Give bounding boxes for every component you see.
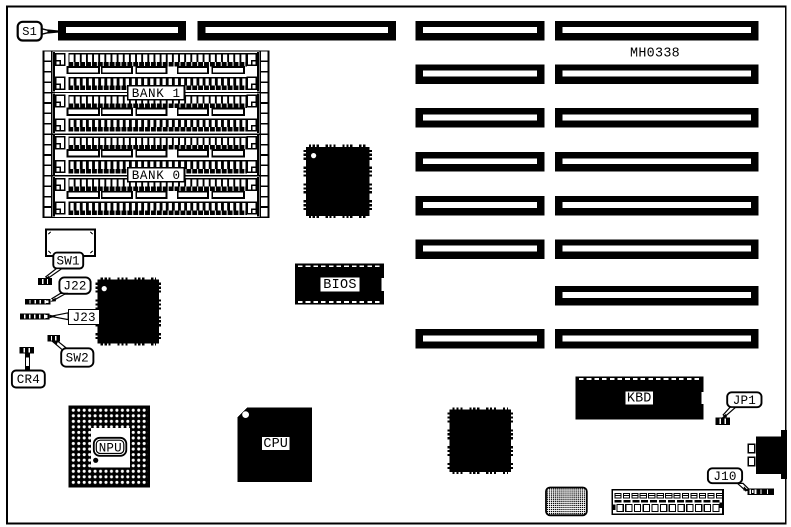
svg-text:JP1: JP1 bbox=[733, 394, 756, 408]
svg-text:NPU: NPU bbox=[99, 442, 122, 456]
svg-text:J10: J10 bbox=[713, 470, 736, 484]
svg-text:CPU: CPU bbox=[263, 437, 288, 452]
svg-text:KBD: KBD bbox=[627, 392, 652, 407]
svg-text:BANK 1: BANK 1 bbox=[132, 87, 181, 101]
svg-text:J22: J22 bbox=[63, 280, 86, 294]
svg-text:MH0338: MH0338 bbox=[630, 47, 680, 62]
svg-text:BANK 0: BANK 0 bbox=[132, 169, 181, 183]
svg-text:BIOS: BIOS bbox=[323, 278, 357, 293]
svg-text:SW1: SW1 bbox=[57, 255, 80, 269]
svg-text:CR4: CR4 bbox=[17, 373, 40, 387]
svg-text:S1: S1 bbox=[22, 25, 37, 39]
svg-text:SW2: SW2 bbox=[66, 352, 89, 366]
svg-text:J23: J23 bbox=[72, 311, 95, 325]
